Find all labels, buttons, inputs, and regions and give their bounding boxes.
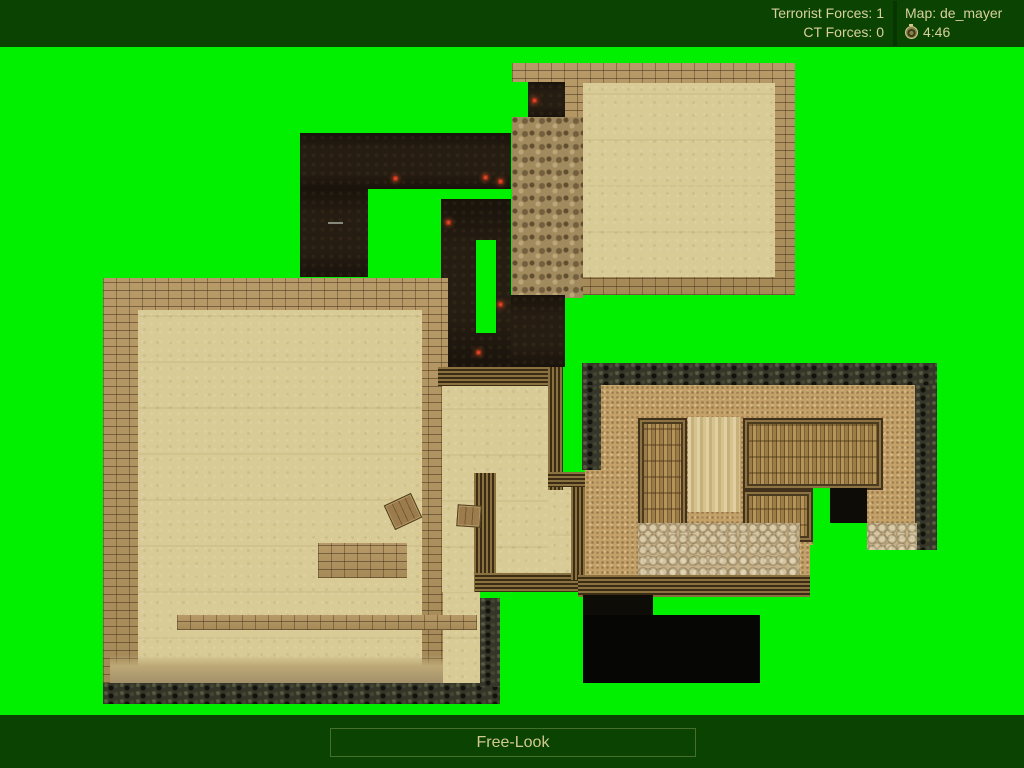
timer-value: 4:46: [923, 24, 950, 40]
ct-forces-value: 0: [876, 24, 884, 40]
hud-divider: [893, 1, 897, 46]
torch-marker: [446, 220, 451, 225]
torch-marker: [476, 350, 481, 355]
terrorist-forces-label: Terrorist Forces:: [771, 5, 872, 21]
map-name-line: Map: de_mayer: [905, 4, 1002, 23]
stopwatch-icon: [905, 26, 918, 39]
torch-marker: [483, 175, 488, 180]
forces-panel: Terrorist Forces: 1 CT Forces: 0: [771, 4, 884, 42]
timer-line: 4:46: [905, 23, 1002, 42]
game-screen: Terrorist Forces: 1 CT Forces: 0 Map: de…: [0, 0, 1024, 768]
freelook-panel: Free-Look: [330, 728, 696, 757]
torch-marker: [532, 98, 537, 103]
hud-bottom-bar: Free-Look: [0, 715, 1024, 768]
map-name-value: de_mayer: [940, 5, 1002, 21]
torch-marker: [498, 302, 503, 307]
map-info-panel: Map: de_mayer 4:46: [905, 4, 1002, 42]
torch-layer: [0, 47, 1024, 715]
terrorist-forces-value: 1: [876, 5, 884, 21]
ct-forces: CT Forces: 0: [771, 23, 884, 42]
torch-marker: [498, 179, 503, 184]
torch-marker: [393, 176, 398, 181]
map-label: Map:: [905, 5, 936, 21]
hud-top-bar: Terrorist Forces: 1 CT Forces: 0 Map: de…: [0, 0, 1024, 47]
ct-forces-label: CT Forces:: [803, 24, 872, 40]
map-viewport[interactable]: [0, 47, 1024, 715]
freelook-label: Free-Look: [477, 734, 550, 751]
terrorist-forces: Terrorist Forces: 1: [771, 4, 884, 23]
